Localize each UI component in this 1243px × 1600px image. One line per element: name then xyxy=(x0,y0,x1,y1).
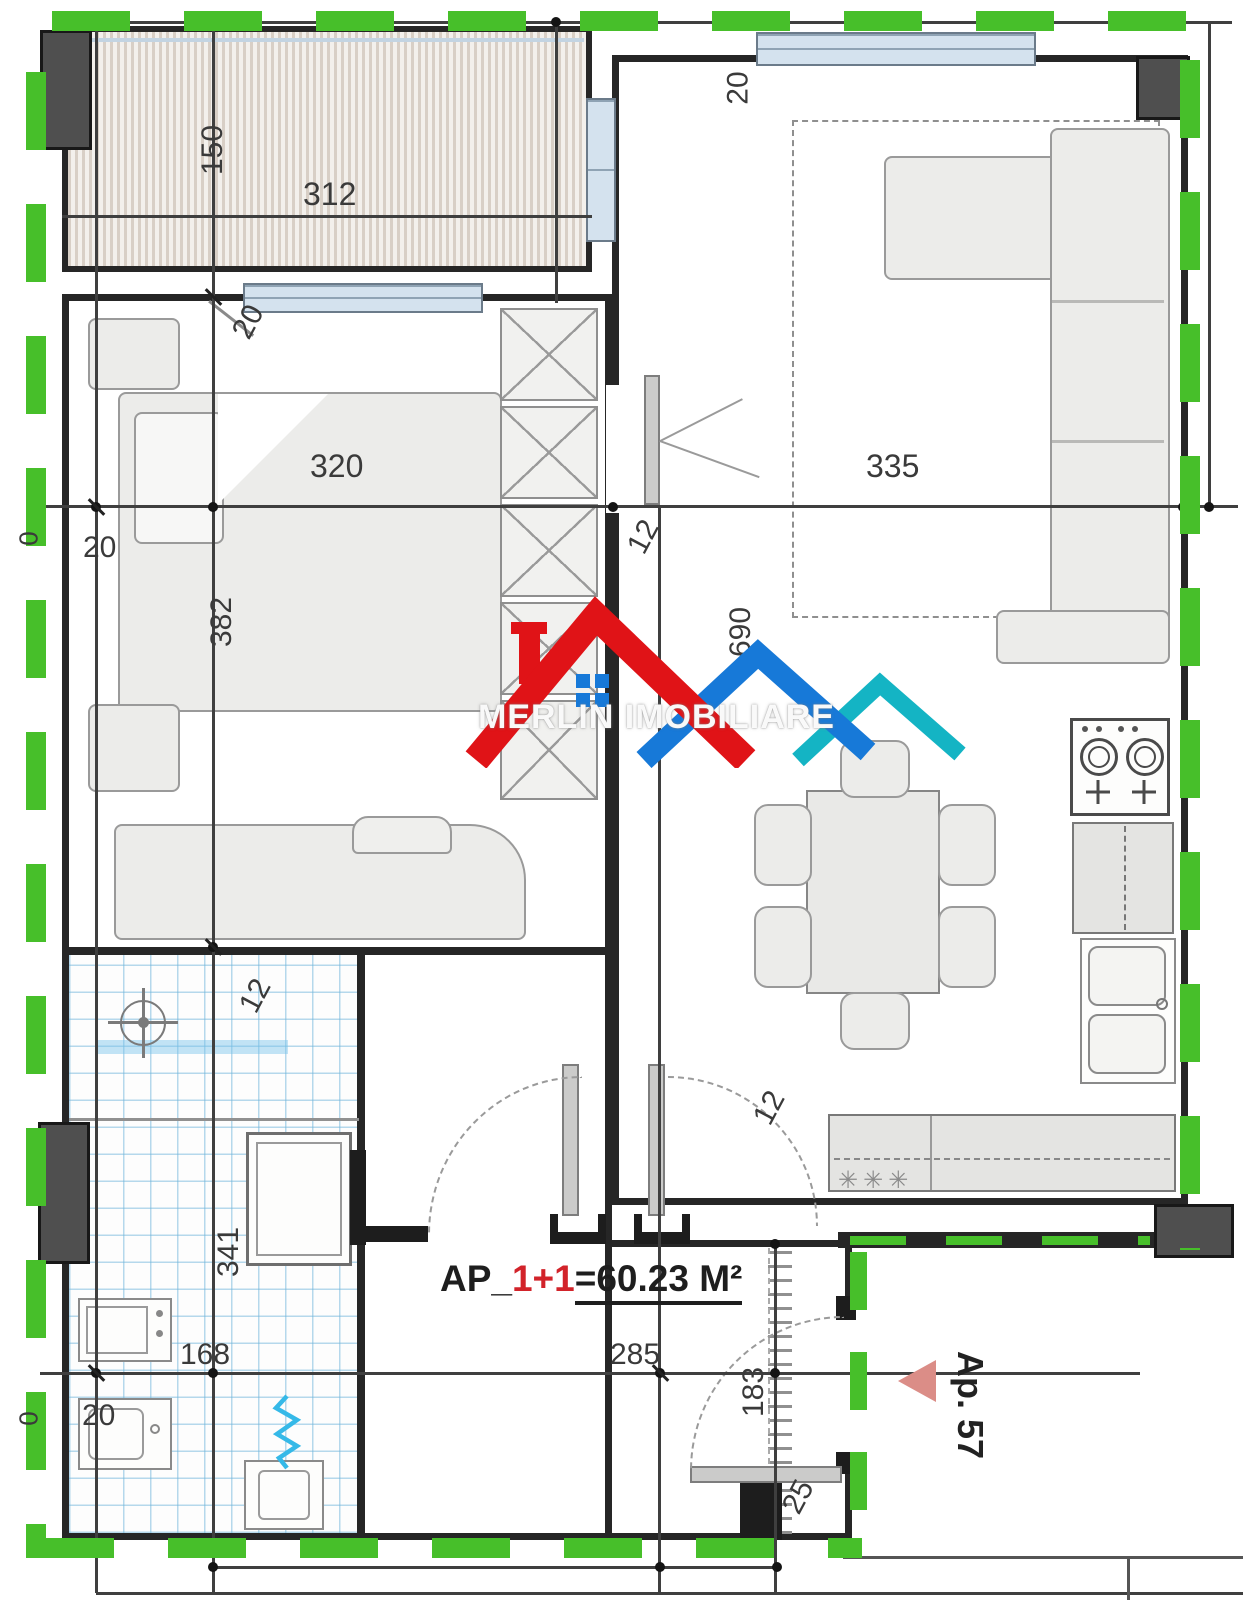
chair-right-2 xyxy=(938,906,996,988)
dim-line xyxy=(1208,21,1211,509)
kitchen-counter-bottom-dash xyxy=(834,1158,1170,1160)
bedroom-window xyxy=(243,283,483,313)
landing-line xyxy=(843,1556,1243,1559)
chair-left-2 xyxy=(754,906,812,988)
balcony-glass-line xyxy=(70,38,584,42)
washer-knob xyxy=(156,1310,163,1317)
chair-left-1 xyxy=(754,804,812,886)
boundary-green-entry-horizontal xyxy=(850,1236,1150,1245)
sofa-cushion-line xyxy=(1052,300,1164,303)
shower-drain-center xyxy=(138,1017,149,1028)
stove-burner-plus-icon xyxy=(1132,780,1156,804)
balcony-side-window xyxy=(586,98,616,242)
dim-living-width: 335 xyxy=(866,448,919,485)
living-door-panel xyxy=(644,375,660,505)
dim-zero-upper: 0 xyxy=(14,531,45,545)
toilet-inner xyxy=(258,1470,310,1520)
area-label-unit: 1+1 xyxy=(512,1258,575,1299)
stove-knob xyxy=(1118,726,1124,732)
washer-knob xyxy=(156,1330,163,1337)
stove-knob xyxy=(1096,726,1102,732)
dim-bedroom-wall: 20 xyxy=(83,531,116,565)
stove-burner-plus-icon xyxy=(1086,780,1110,804)
hall-door-panel-right xyxy=(648,1064,665,1216)
stove-knob xyxy=(1132,726,1138,732)
dim-entry-width: 285 xyxy=(610,1338,660,1372)
dining-table xyxy=(806,790,940,994)
dim-node xyxy=(770,1368,780,1378)
wardrobe-box xyxy=(500,504,598,597)
dim-node xyxy=(772,1562,782,1572)
dim-bedroom-depth: 382 xyxy=(205,597,239,647)
dim-node xyxy=(770,1239,780,1249)
dim-node xyxy=(1204,502,1214,512)
dim-entry-depth: 183 xyxy=(737,1367,771,1417)
dim-node xyxy=(208,502,218,512)
sink-faucet-icon xyxy=(150,1424,160,1434)
wardrobe-box xyxy=(500,406,598,499)
boundary-green-top xyxy=(52,11,1198,31)
dim-line xyxy=(555,21,558,303)
dim-node xyxy=(655,1562,665,1572)
dim-bath-width: 168 xyxy=(180,1338,230,1372)
landing-line xyxy=(1127,1556,1130,1600)
column-top-left xyxy=(40,30,92,150)
dim-node xyxy=(608,502,618,512)
sink-bowl xyxy=(1088,1014,1166,1074)
entrance-marker-icon xyxy=(898,1360,936,1402)
brand-watermark: MERLIN IMOBILIARE xyxy=(478,698,835,737)
area-label-value: =60.23 M² xyxy=(575,1258,743,1305)
water-zigzag-icon xyxy=(272,1394,302,1470)
hall-wall-stub xyxy=(364,1226,428,1242)
living-door-opening xyxy=(606,385,624,513)
bathroom-door-jamb xyxy=(350,1150,366,1245)
dim-living-top: 20 xyxy=(722,71,756,104)
shower-tray-inner xyxy=(256,1142,342,1256)
dim-line xyxy=(62,215,592,218)
dim-line xyxy=(213,1566,779,1569)
bed-pillow xyxy=(134,412,224,544)
dim-node xyxy=(208,1562,218,1572)
area-label-prefix: AP_ xyxy=(440,1258,512,1299)
boundary-green-entry-vertical xyxy=(850,1252,867,1548)
sofa-cushion-line xyxy=(1052,440,1164,443)
brand-logo-icon xyxy=(448,590,1023,768)
neighbor-label: Ap. 57 xyxy=(949,1351,991,1459)
dim-balcony-depth: 150 xyxy=(196,125,230,175)
nightstand-top xyxy=(88,318,180,390)
dim-bath-depth: 341 xyxy=(212,1227,246,1277)
boundary-green-left xyxy=(26,72,46,1558)
living-window xyxy=(756,32,1036,66)
boundary-green-right xyxy=(1180,60,1200,1250)
floor-plan: ✳✳✳ xyxy=(0,0,1243,1600)
hallway-floor xyxy=(358,948,612,1540)
area-label: AP_1+1=60.23 M² xyxy=(440,1258,742,1300)
sink-bowl xyxy=(1088,946,1166,1006)
wardrobe-box xyxy=(500,308,598,401)
kitchen-counter-dash xyxy=(1124,826,1126,930)
balcony-floor xyxy=(62,26,592,272)
sofa-chaise xyxy=(884,156,1064,280)
nightstand-bottom xyxy=(88,704,180,792)
dim-line xyxy=(96,1592,1243,1595)
stove-burner-icon xyxy=(1080,738,1118,776)
sofa-body xyxy=(1050,128,1170,660)
kitchen-counter-divider xyxy=(930,1116,932,1190)
dim-bedroom-width: 320 xyxy=(310,448,363,485)
kitchen-counter-mid xyxy=(1072,822,1174,934)
chair-bottom xyxy=(840,992,910,1050)
dim-bath-wall: 20 xyxy=(82,1399,115,1433)
sink-faucet-icon xyxy=(1156,998,1168,1010)
stove-burner-icon xyxy=(1126,738,1164,776)
dim-zero-lower: 0 xyxy=(14,1411,45,1425)
dim-balcony-width: 312 xyxy=(303,176,356,213)
dim-line xyxy=(95,21,98,1593)
chair-right-1 xyxy=(938,804,996,886)
counter-marks: ✳✳✳ xyxy=(838,1166,913,1195)
boundary-green-bottom xyxy=(36,1538,862,1558)
stove-knob xyxy=(1082,726,1088,732)
dresser xyxy=(114,824,526,940)
dresser-lamp xyxy=(352,816,452,854)
shower-water-line xyxy=(98,1040,288,1054)
